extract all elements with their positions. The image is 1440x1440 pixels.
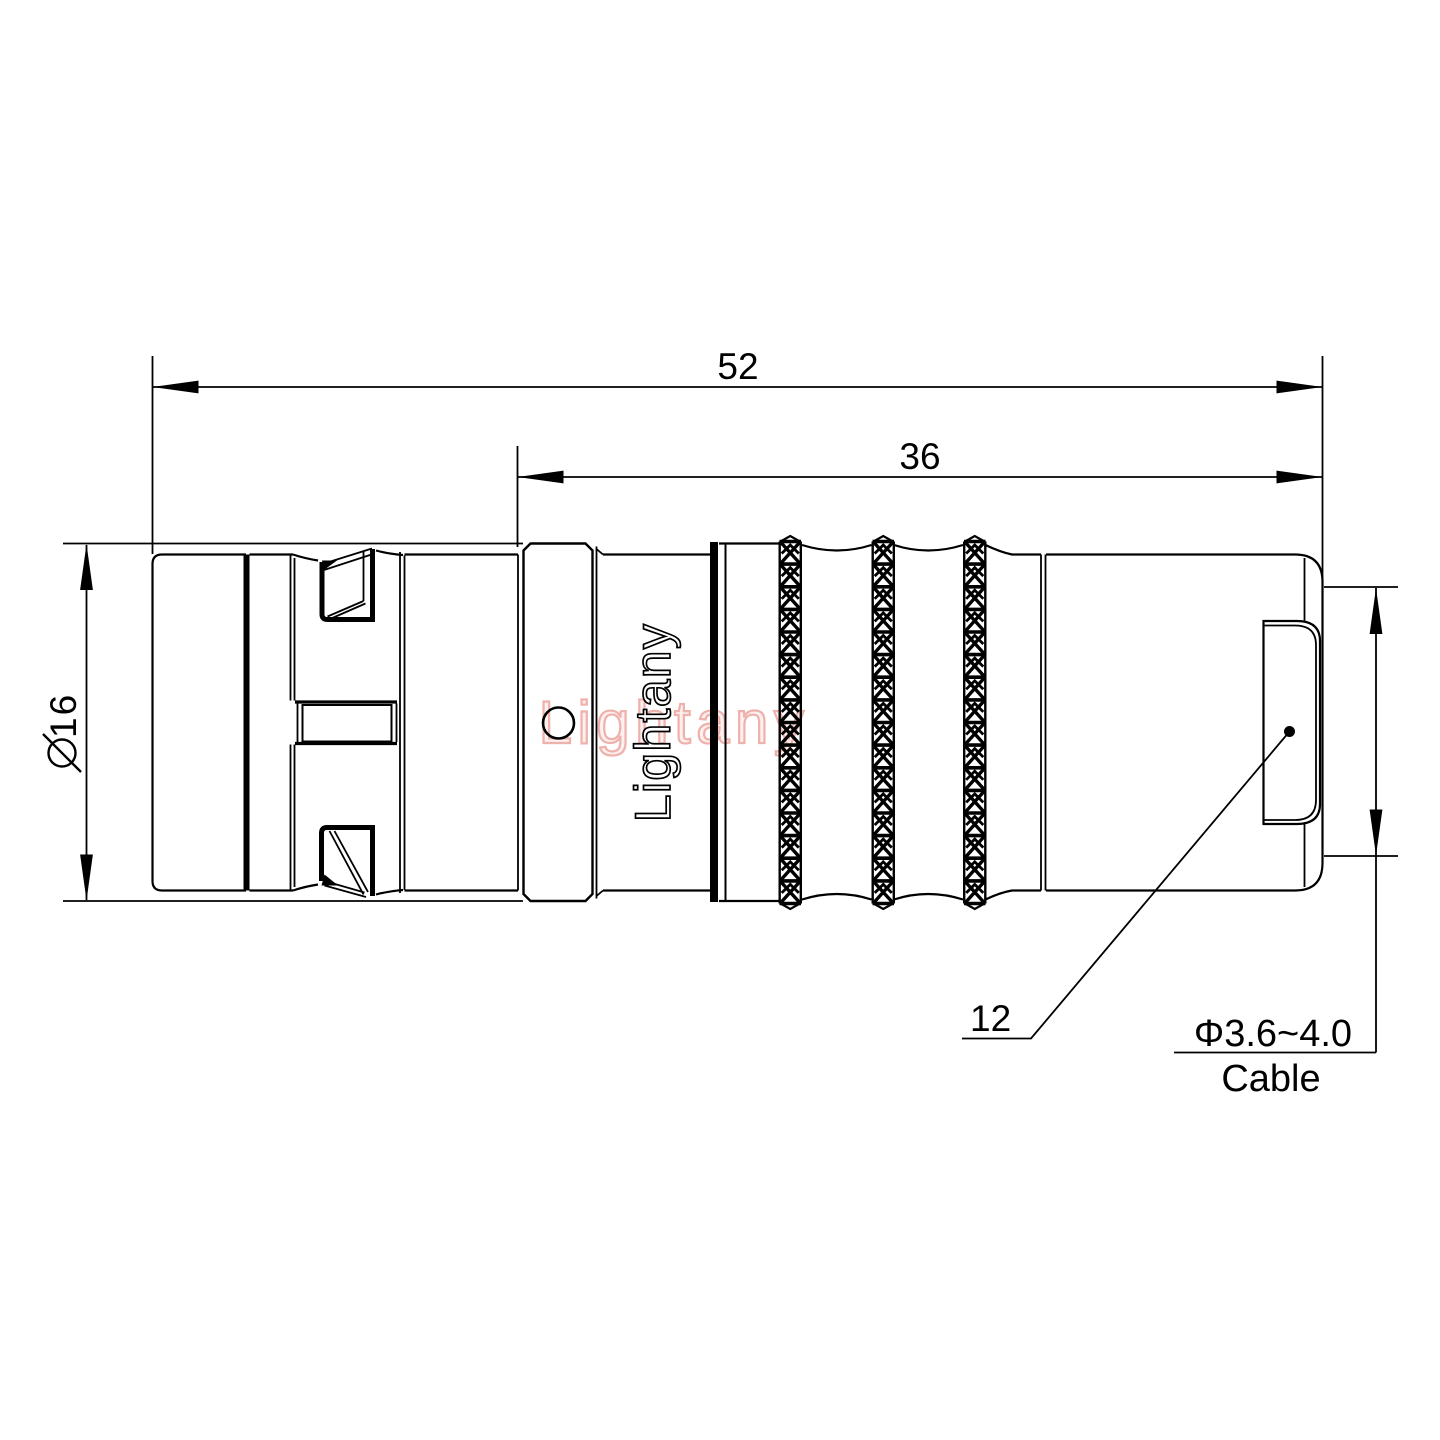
svg-text:52: 52 (717, 346, 758, 387)
svg-text:12: 12 (970, 998, 1011, 1039)
svg-text:Lightany: Lightany (625, 623, 681, 822)
svg-text:16: 16 (43, 693, 84, 738)
svg-text:Cable: Cable (1221, 1058, 1320, 1100)
svg-text:36: 36 (899, 436, 940, 477)
svg-text:Φ3.6~4.0: Φ3.6~4.0 (1194, 1013, 1352, 1055)
